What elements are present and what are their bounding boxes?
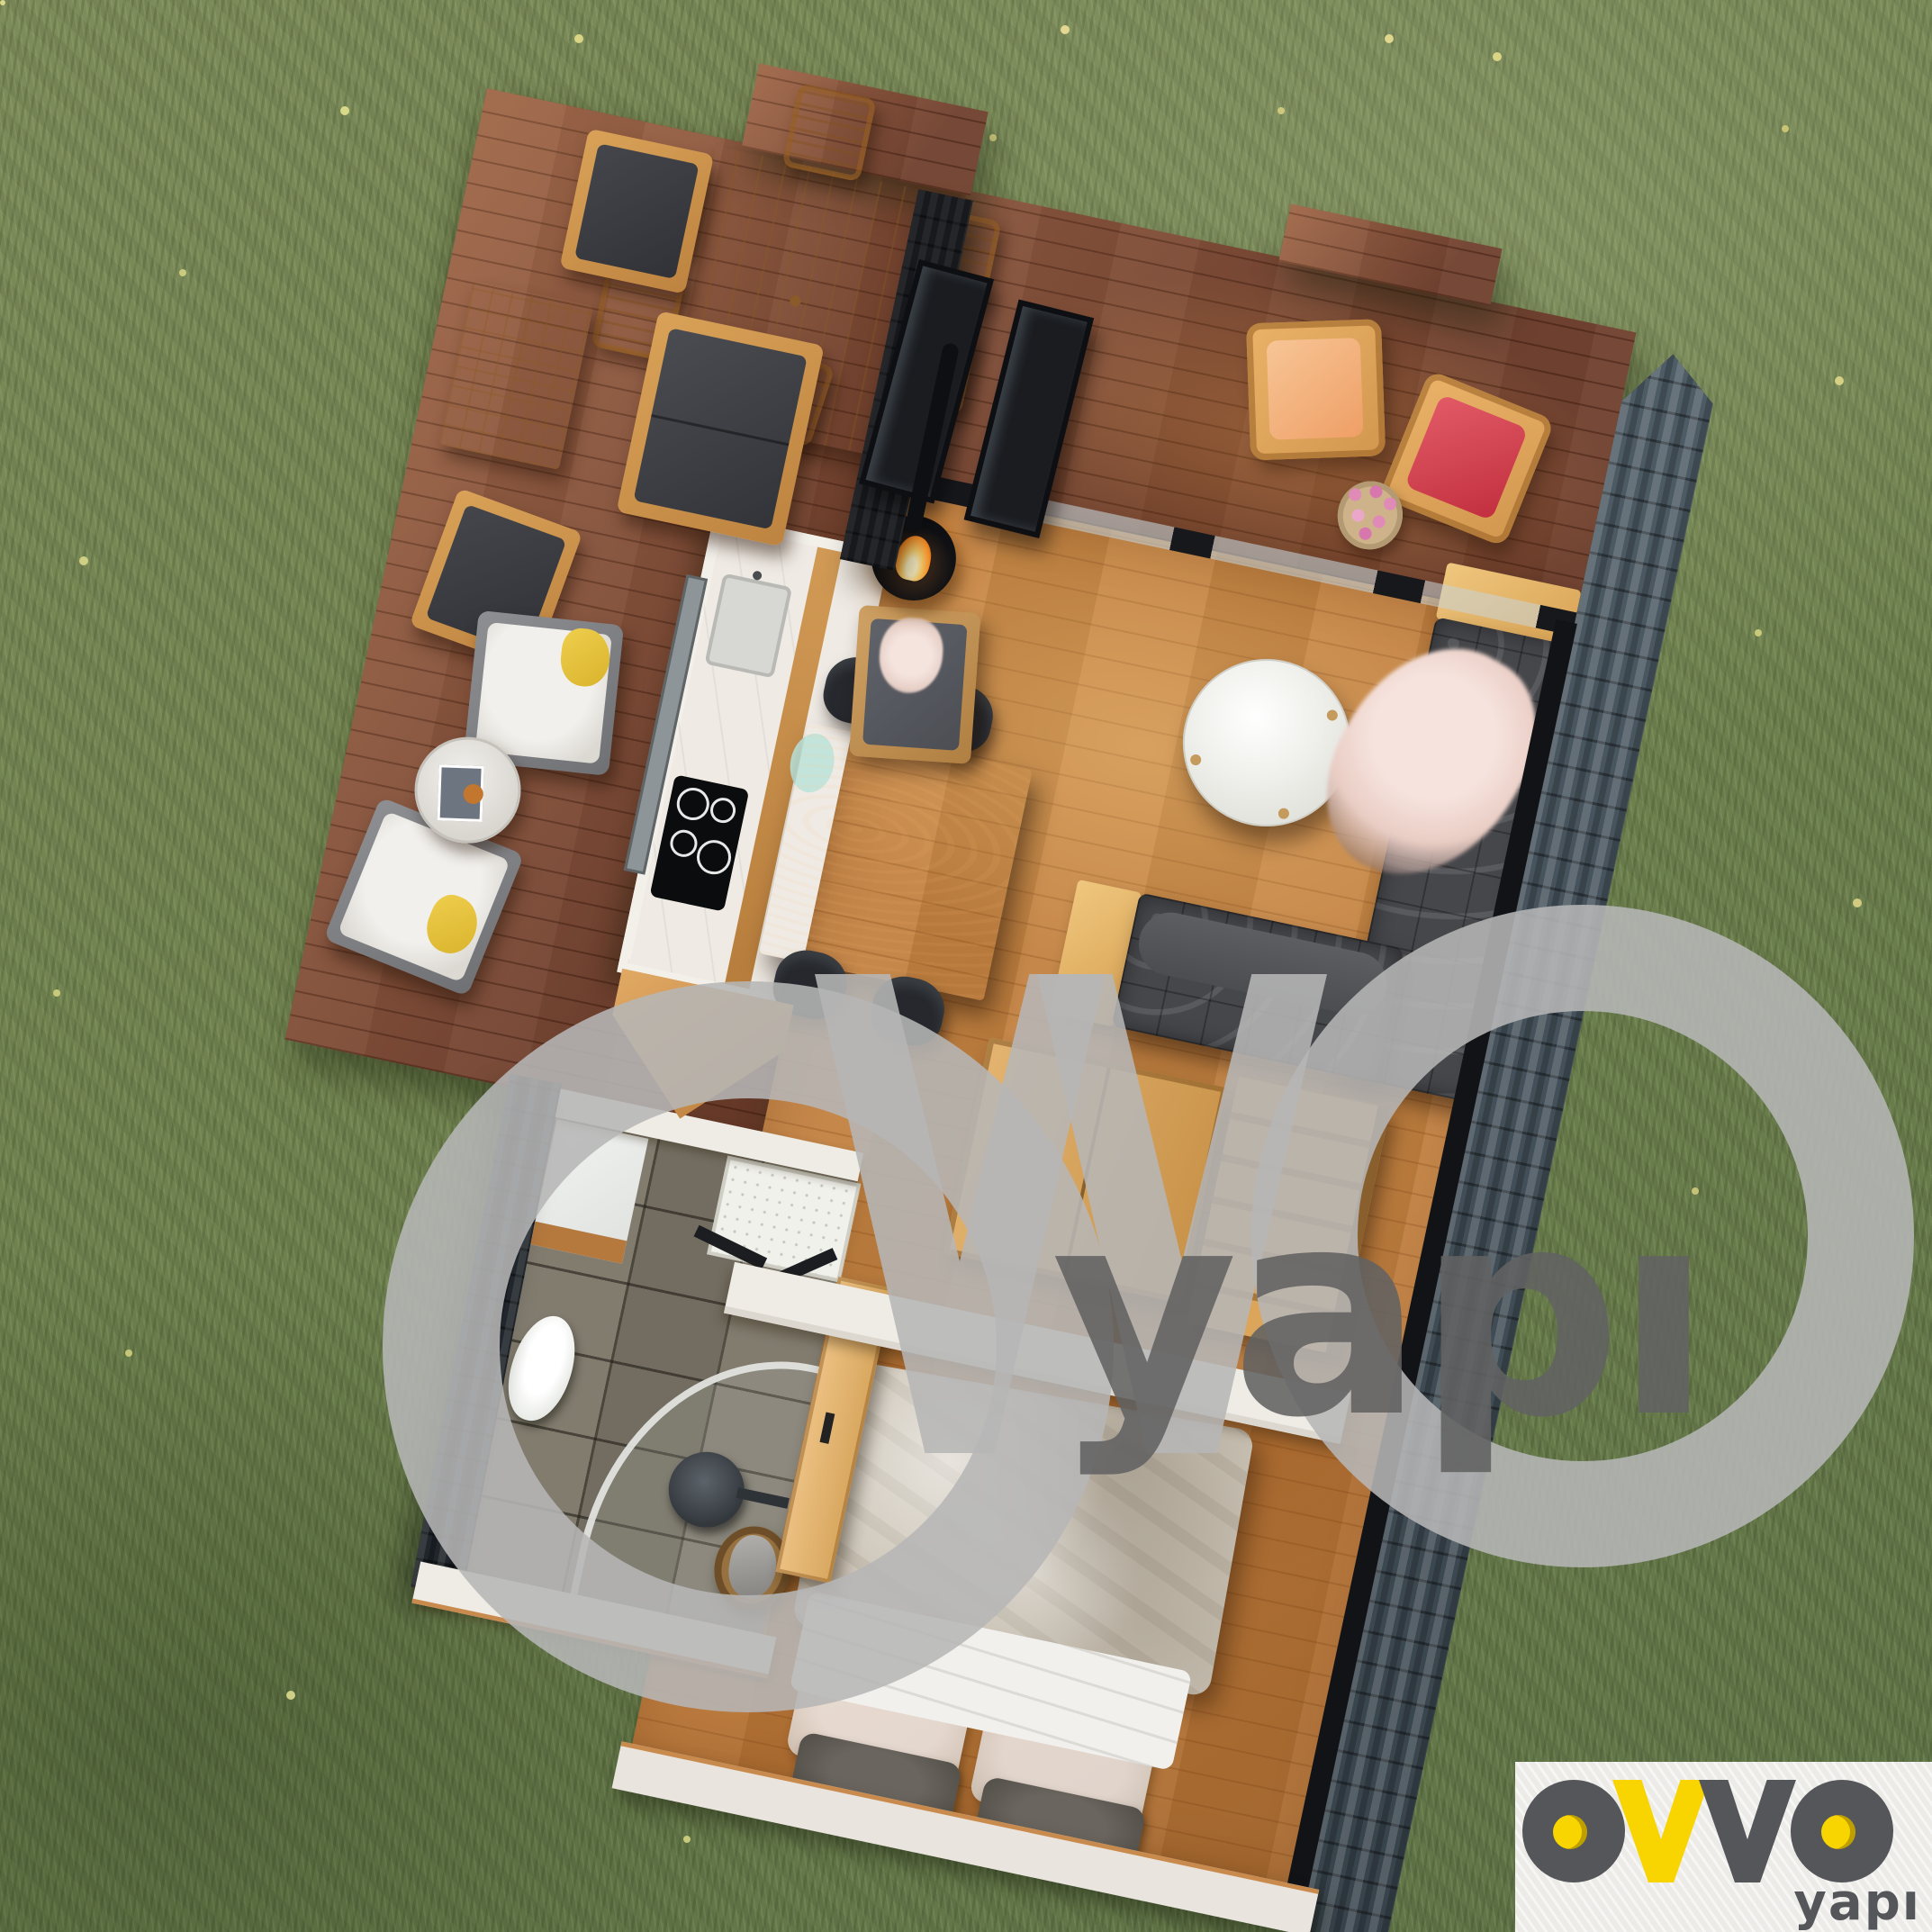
render-canvas: yapı yapı <box>0 0 1932 1932</box>
grass-flowers <box>0 0 5 5</box>
fireside-armchair <box>849 605 980 764</box>
logo-letter-a <box>1522 1780 1625 1882</box>
rocking-chair-peach <box>1246 319 1386 460</box>
logo-subtext: yapı <box>1793 1878 1921 1928</box>
brand-wordmark <box>1522 1778 1886 1884</box>
logo-letter-v-yellow <box>1612 1780 1710 1882</box>
logo-letter-v <box>1699 1780 1796 1882</box>
floorplan-group <box>0 0 1932 1932</box>
logo-letter-a <box>1791 1780 1893 1882</box>
brand-logo-plate: yapı <box>1515 1762 1932 1932</box>
